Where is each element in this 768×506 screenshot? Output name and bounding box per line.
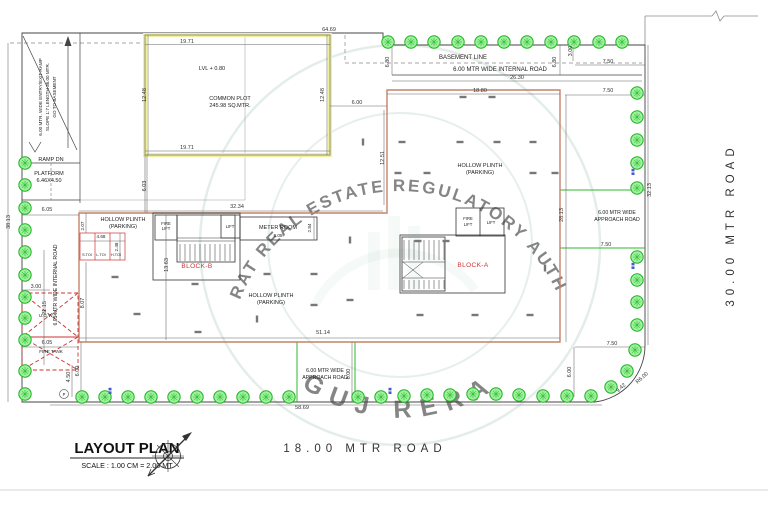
parking-tick xyxy=(472,314,479,316)
parking-tick xyxy=(362,139,364,146)
watermark-emblem-building xyxy=(368,216,420,290)
dim-51-14: 51.14 xyxy=(316,330,330,336)
dim-6-80-left: 6.80 xyxy=(385,57,391,68)
parking-tick xyxy=(460,96,467,98)
tree-symbol xyxy=(490,388,502,400)
dim-6-05-bottom: 6.05 xyxy=(42,340,53,346)
tree-symbol xyxy=(398,390,410,402)
block-b-label: BLOCK-B xyxy=(181,263,212,270)
dim-3-00-topright: 3.00 xyxy=(568,46,574,57)
tree-symbol xyxy=(19,291,31,303)
ugwt-label: U.G.W.T. xyxy=(39,313,57,318)
dim-64-69: 64.69 xyxy=(322,27,336,33)
dim-6-00-west: 6.00 xyxy=(75,366,81,377)
hollow-plinth-3b: (PARKING) xyxy=(466,170,494,176)
basement-line-label: BASEMENT LINE xyxy=(439,55,487,61)
tree-symbol xyxy=(382,36,394,48)
tree-symbol xyxy=(631,134,643,146)
tree-symbol xyxy=(375,391,387,403)
hollow-plinth-3a: HOLLOW PLINTH xyxy=(458,163,503,169)
parking-tick xyxy=(399,141,406,143)
tree-symbol xyxy=(76,391,88,403)
tree-symbol xyxy=(585,390,597,402)
parking-tick xyxy=(195,331,202,333)
tree-symbol xyxy=(498,36,510,48)
tree-symbol xyxy=(561,390,573,402)
tree-symbol xyxy=(122,391,134,403)
tree-symbol xyxy=(631,296,643,308)
dim-2-48: 2.48 xyxy=(114,242,119,251)
tree-symbol xyxy=(444,389,456,401)
ramp-label-2: SLOPE 1:7 LENGTH 36.00 MTR. xyxy=(45,63,50,131)
dim-6-00-corner: 6.00 xyxy=(567,367,573,378)
tree-symbol xyxy=(621,365,633,377)
common-plot-highlight xyxy=(145,35,330,155)
tree-symbol xyxy=(19,224,31,236)
parking-tick xyxy=(489,96,496,98)
tree-symbol xyxy=(629,344,641,356)
approach-south-label-1: 6.00 MTR WIDE xyxy=(306,368,344,374)
line-break-symbol xyxy=(712,11,724,21)
parking-tick xyxy=(527,314,534,316)
level-label: LVL + 0.80 xyxy=(199,66,225,72)
tree-symbol xyxy=(260,391,272,403)
fire-tank-label: FIRE TANK xyxy=(39,349,64,354)
dim-32-13: 32.13 xyxy=(647,183,653,197)
parking-tick xyxy=(530,141,537,143)
parking-tick xyxy=(134,313,141,315)
road-south-label: 18.00 MTR ROAD xyxy=(283,443,446,455)
parking-tick xyxy=(544,265,546,272)
dim-12-48-left: 12.48 xyxy=(142,88,148,102)
parking-tick xyxy=(415,240,422,242)
ramp-arrow-head xyxy=(65,36,72,46)
dim-6-03: 6.03 xyxy=(142,181,148,192)
dim-8-05: 8.05 xyxy=(274,233,283,238)
dim-4-50: 4.50 xyxy=(66,372,72,383)
layout-plan-drawing: GUJARAT REAL ESTATE REGULATORY AUTHORITY… xyxy=(0,0,768,506)
tree-symbol xyxy=(631,182,643,194)
tree-symbol xyxy=(214,391,226,403)
platform-label: PLATFORM xyxy=(34,171,64,177)
block-a-label: BLOCK-A xyxy=(457,262,489,269)
l-toi-label: L.TOI xyxy=(96,253,105,257)
tree-symbol xyxy=(616,36,628,48)
drawing-svg: GUJARAT REAL ESTATE REGULATORY AUTHORITY… xyxy=(0,0,768,506)
dim-6-00-top: 6.00 xyxy=(352,100,363,106)
survey-marker: P xyxy=(60,390,69,399)
parking-tick xyxy=(417,314,424,316)
parking-tick xyxy=(443,240,450,242)
tree-symbol xyxy=(19,269,31,281)
dim-12-51: 12.51 xyxy=(380,151,386,165)
tree-symbol xyxy=(19,312,31,324)
tree-symbol xyxy=(452,36,464,48)
tree-symbol xyxy=(237,391,249,403)
dim-6-80-right: 6.80 xyxy=(552,57,558,68)
parking-tick xyxy=(192,283,199,285)
dim-26-30: 26.30 xyxy=(510,75,524,81)
common-plot-outline xyxy=(145,35,330,155)
dim-3-00-left: 3.00 xyxy=(31,284,42,290)
block-b-lift-label: LIFT xyxy=(226,224,235,229)
approach-east-label-2: APPROACH ROAD xyxy=(594,217,640,223)
dim-18-80: 18.80 xyxy=(473,88,487,94)
tree-symbol xyxy=(631,319,643,331)
tree-symbol xyxy=(537,390,549,402)
parking-tick xyxy=(552,172,559,174)
approach-east-label-1: 6.00 MTR WIDE xyxy=(598,210,636,216)
parking-tick xyxy=(256,316,258,323)
tree-tag xyxy=(389,388,392,394)
hollow-plinth-1b: (PARKING) xyxy=(109,224,137,230)
parking-tick xyxy=(112,276,119,278)
parking-tick xyxy=(530,172,537,174)
ramp-dn-label: RAMP DN xyxy=(38,157,63,163)
tree-symbol xyxy=(545,36,557,48)
survey-marker-label: P xyxy=(63,392,66,397)
tree-symbol xyxy=(421,389,433,401)
tree-tag xyxy=(632,263,635,269)
tree-symbol xyxy=(191,391,203,403)
block-a-lift-label: LIFT xyxy=(487,220,496,225)
ramp-diagonal xyxy=(23,36,77,150)
hollow-plinth-2b: (PARKING) xyxy=(257,300,285,306)
h-toi-label: H.TOI xyxy=(111,253,121,257)
dim-7-50-c: 7.50 xyxy=(601,242,612,248)
tree-symbol xyxy=(631,251,643,263)
tree-tag xyxy=(632,169,635,175)
tanks xyxy=(22,293,78,370)
tree-symbol xyxy=(428,36,440,48)
tree-symbol xyxy=(513,389,525,401)
tree-symbol xyxy=(19,246,31,258)
block-a-firelift-label: LIFT xyxy=(464,222,473,227)
platform-size-label: 6.46X4.50 xyxy=(36,178,61,184)
tree-symbol xyxy=(19,202,31,214)
tree-symbol xyxy=(145,391,157,403)
dim-6-05-top: 6.05 xyxy=(42,207,53,213)
dim-12-48-right: 12.48 xyxy=(320,88,326,102)
dim-28-13: 28.13 xyxy=(559,208,565,222)
parking-tick xyxy=(494,141,501,143)
common-plot-area-label: 245.98 SQ.MTR. xyxy=(209,103,251,109)
dim-8-07: 8.07 xyxy=(80,298,86,309)
tree-symbol xyxy=(352,391,364,403)
dim-19-71-bottom: 19.71 xyxy=(180,145,194,151)
title-block: LAYOUT PLAN SCALE : 1.00 CM = 2.00 MT xyxy=(70,432,192,476)
ramp-label-1: 6.00 MTR. WIDE ENTRY/EXIT RAMP xyxy=(38,58,43,135)
hollow-plinth-2a: HOLLOW PLINTH xyxy=(249,293,294,299)
dim-7-50-d: 7.50 xyxy=(607,341,618,347)
road-east-label: 30.00 MTR ROAD xyxy=(725,143,737,306)
tree-symbol xyxy=(475,36,487,48)
approach-south-label-2: APPROACH ROAD xyxy=(302,375,348,381)
tree-symbol xyxy=(631,87,643,99)
tree-symbol xyxy=(19,334,31,346)
ramp-dn-mark xyxy=(29,142,41,152)
ramp-label-3: GO TO BASEMENT xyxy=(52,76,57,117)
tree-symbol xyxy=(19,388,31,400)
parking-tick xyxy=(424,172,431,174)
tree-symbol xyxy=(405,36,417,48)
zone-division-lines xyxy=(80,33,245,200)
block-b-stair-box xyxy=(177,215,235,262)
dim-2-84: 2.84 xyxy=(307,223,312,232)
tree-symbol xyxy=(467,388,479,400)
tree-symbol xyxy=(631,111,643,123)
tree-symbol xyxy=(283,391,295,403)
block-b-stair-treads xyxy=(180,244,230,261)
meter-room-label: METER ROOM xyxy=(259,225,297,231)
dim-7-50-a: 7.50 xyxy=(603,59,614,65)
dim-7-50-b: 7.50 xyxy=(603,88,614,94)
parking-tick xyxy=(311,304,318,306)
parking-tick xyxy=(349,237,351,244)
dim-13-63: 13.63 xyxy=(164,258,170,272)
s-toi-label: S.TOI xyxy=(82,253,92,257)
dim-4-68: 4.68 xyxy=(97,234,106,239)
dim-19-71-top: 19.71 xyxy=(180,39,194,45)
tree-symbol xyxy=(631,157,643,169)
tree-symbol xyxy=(521,36,533,48)
parking-tick xyxy=(395,172,402,174)
tree-symbol xyxy=(605,381,617,393)
block-a-fire-label: FIRE xyxy=(463,216,473,221)
internal-road-top-label: 6.00 MTR WIDE INTERNAL ROAD xyxy=(453,67,547,73)
dim-58-69: 58.69 xyxy=(295,405,309,411)
tree-symbol xyxy=(19,157,31,169)
parking-tick xyxy=(311,273,318,275)
hollow-plinth-1a: HOLLOW PLINTH xyxy=(101,217,146,223)
parking-tick xyxy=(347,299,354,301)
dim-32-34: 32.34 xyxy=(230,204,244,210)
dim-6-00-south: 6.00 xyxy=(346,369,352,380)
dim-38-13: 38.13 xyxy=(6,215,12,229)
tree-symbol xyxy=(631,274,643,286)
tree-symbol xyxy=(19,179,31,191)
dim-r6-00: R6.00 xyxy=(635,371,650,385)
tree-symbol xyxy=(168,391,180,403)
parking-tick xyxy=(457,141,464,143)
tree-symbol xyxy=(19,365,31,377)
common-plot-label: COMMON PLOT xyxy=(209,96,251,102)
tree-tag xyxy=(109,388,112,394)
tree-symbol xyxy=(593,36,605,48)
common-plot xyxy=(145,35,330,213)
block-b-stair-landing xyxy=(177,238,235,241)
dim-2-07: 2.07 xyxy=(80,221,85,230)
parking-tick xyxy=(264,273,271,275)
block-b-firelift-label: LIFT xyxy=(162,226,171,231)
